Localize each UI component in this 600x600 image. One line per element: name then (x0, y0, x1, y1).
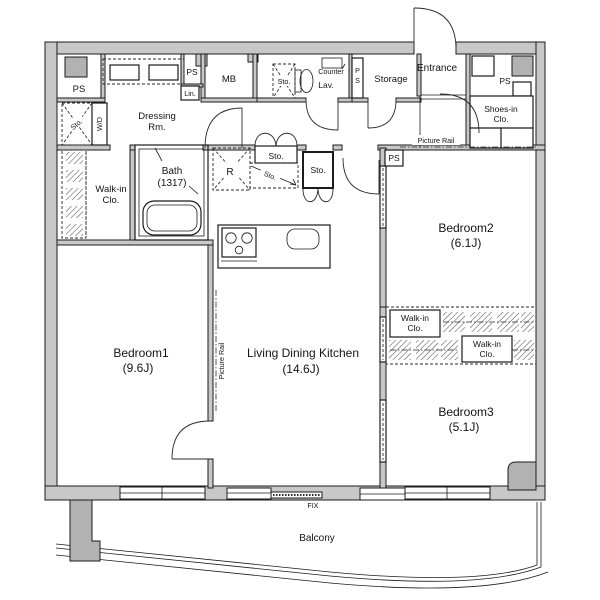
wall-segment (208, 459, 213, 488)
window (227, 488, 271, 499)
ps-label: PS (73, 84, 86, 95)
hanging-clothes (66, 206, 83, 218)
bedroom1-door-arc (172, 421, 210, 459)
washer-dryer-label: W/D (95, 117, 104, 131)
ps-label: PS (186, 67, 198, 77)
ps-vertical-label: P (355, 66, 360, 75)
fix-window-label: FIX (307, 501, 318, 510)
room-size-ldk: (14.6J) (282, 362, 319, 376)
hanging-clothes (66, 188, 83, 200)
storage-door-arc (368, 100, 396, 128)
walkin-closet-left (62, 150, 86, 238)
dressing-room-label: Dressing (138, 111, 176, 122)
walkin-closet-label: Walk-in (401, 313, 429, 323)
balcony-rail-line (56, 502, 537, 578)
meter-box-label: MB (222, 74, 236, 85)
walkin-closet-label: Clo. (103, 195, 120, 206)
wall-segment (203, 145, 255, 150)
wall-segment (57, 240, 213, 245)
counter-basin (110, 65, 139, 80)
burner (235, 246, 243, 254)
ps-vertical-label: S (355, 76, 360, 85)
wall-segment (57, 145, 110, 150)
entrance-fixtures (470, 56, 533, 148)
walkin-closet-label: Walk-in (473, 339, 501, 349)
shoes-shelf-box (472, 56, 494, 76)
room-size-bedroom3: (5.1J) (449, 420, 480, 434)
picture-rail-label: Picture Rail (418, 136, 455, 145)
dressing-room-label: Rm. (148, 122, 165, 133)
wall-segment (380, 462, 386, 488)
bath-fixtures (135, 145, 208, 240)
room-label-bedroom1: Bedroom1 (113, 346, 169, 360)
wall-segment (208, 245, 213, 421)
wall-segment (201, 54, 205, 102)
bath-size-label: (1317) (158, 178, 187, 189)
hanging-clothes (66, 224, 83, 236)
room-size-bedroom2: (6.1J) (451, 236, 482, 250)
balcony-rail-line (56, 555, 548, 588)
room-size-bedroom1: (9.6J) (123, 361, 154, 375)
burner (226, 233, 236, 243)
wall-segment (297, 145, 306, 150)
wall-segment (333, 145, 342, 150)
room-label-ldk: Living Dining Kitchen (247, 346, 359, 360)
burner (242, 233, 252, 243)
folding-door-arc (318, 189, 333, 202)
folding-door-arc (255, 133, 276, 146)
wall-segment (253, 54, 257, 102)
wall-segment (130, 145, 135, 150)
wall-segment (257, 98, 306, 102)
wall-segment (45, 42, 57, 500)
shoes-closet-label: Shoes-in (484, 104, 518, 114)
storage-room-label: Storage (374, 74, 407, 85)
corridor-storage (213, 133, 403, 202)
wall-segment (396, 98, 421, 102)
ldk-door-arc (343, 158, 379, 194)
lavatory-door-arc (306, 100, 338, 130)
linen-label: Lin. (184, 89, 196, 98)
label-backgrounds (67, 76, 460, 183)
label-leader (189, 186, 198, 194)
storage-label: Sto. (310, 165, 325, 175)
fridge-label: R (226, 167, 233, 178)
floor-plan-page: PS Dressing Rm. PS Lin. MB Sto. Counter … (0, 0, 600, 600)
folding-door-arc (303, 189, 318, 202)
walkin-closet-label: Clo. (479, 349, 494, 359)
stove (222, 228, 256, 257)
wall-segment (45, 42, 414, 54)
pipe-shaft-column (512, 56, 533, 76)
dressing-door-arc (205, 108, 242, 148)
ps-label: PS (499, 76, 511, 86)
wall-segment (338, 98, 352, 102)
pipe-shaft-box (513, 82, 531, 96)
balcony-pier (70, 500, 100, 561)
kitchen-sink (287, 229, 319, 249)
toilet-bowl (300, 70, 313, 93)
wall-segment (380, 228, 386, 308)
hanging-clothes (66, 152, 83, 164)
labels: PS Dressing Rm. PS Lin. MB Sto. Counter … (69, 63, 519, 544)
bath-unit-inner (139, 149, 204, 236)
walkin-closet-label: Walk-in (95, 184, 126, 195)
kitchen-fixtures (218, 225, 330, 268)
columns (70, 462, 536, 561)
wall-segment (456, 42, 545, 54)
entrance-label: Entrance (417, 63, 457, 74)
wall-segment (536, 42, 545, 500)
walkin-closet-label: Clo. (407, 323, 422, 333)
bath-label: Bath (162, 166, 183, 177)
room-label-bedroom2: Bedroom2 (438, 221, 494, 235)
entrance-door-arc (414, 8, 456, 49)
picture-rails (216, 147, 536, 412)
hanging-clothes (66, 170, 83, 182)
balcony-label: Balcony (299, 533, 335, 544)
ps-label: PS (388, 153, 400, 163)
storage-label: Sto. (268, 151, 283, 161)
wall-segment (417, 54, 421, 96)
bathtub-inner (147, 205, 197, 231)
wall-segment (130, 150, 135, 240)
wall-segment (201, 98, 257, 102)
wall-segment (380, 360, 386, 400)
bath-unit-outer (135, 145, 208, 240)
shoes-closet-label: Clo. (493, 114, 508, 124)
room-label-bedroom3: Bedroom3 (438, 405, 494, 419)
folding-door-arc (276, 133, 297, 146)
storage-arrowhead (290, 184, 296, 185)
picture-rail-label: Picture Rail (217, 342, 226, 379)
balcony-railing (56, 502, 548, 588)
counter-label: Counter (318, 67, 344, 76)
label-leader (155, 148, 162, 161)
fix-window (271, 492, 322, 498)
floor-plan-drawing: PS Dressing Rm. PS Lin. MB Sto. Counter … (0, 0, 600, 600)
wall-segment (57, 98, 105, 102)
kitchen-counter (218, 225, 330, 268)
counter-basin (149, 65, 178, 80)
corner-column (508, 462, 536, 490)
storage-label: Sto. (278, 77, 291, 86)
pipe-shaft-column (65, 57, 87, 77)
lavatory-label: Lav. (318, 80, 333, 90)
